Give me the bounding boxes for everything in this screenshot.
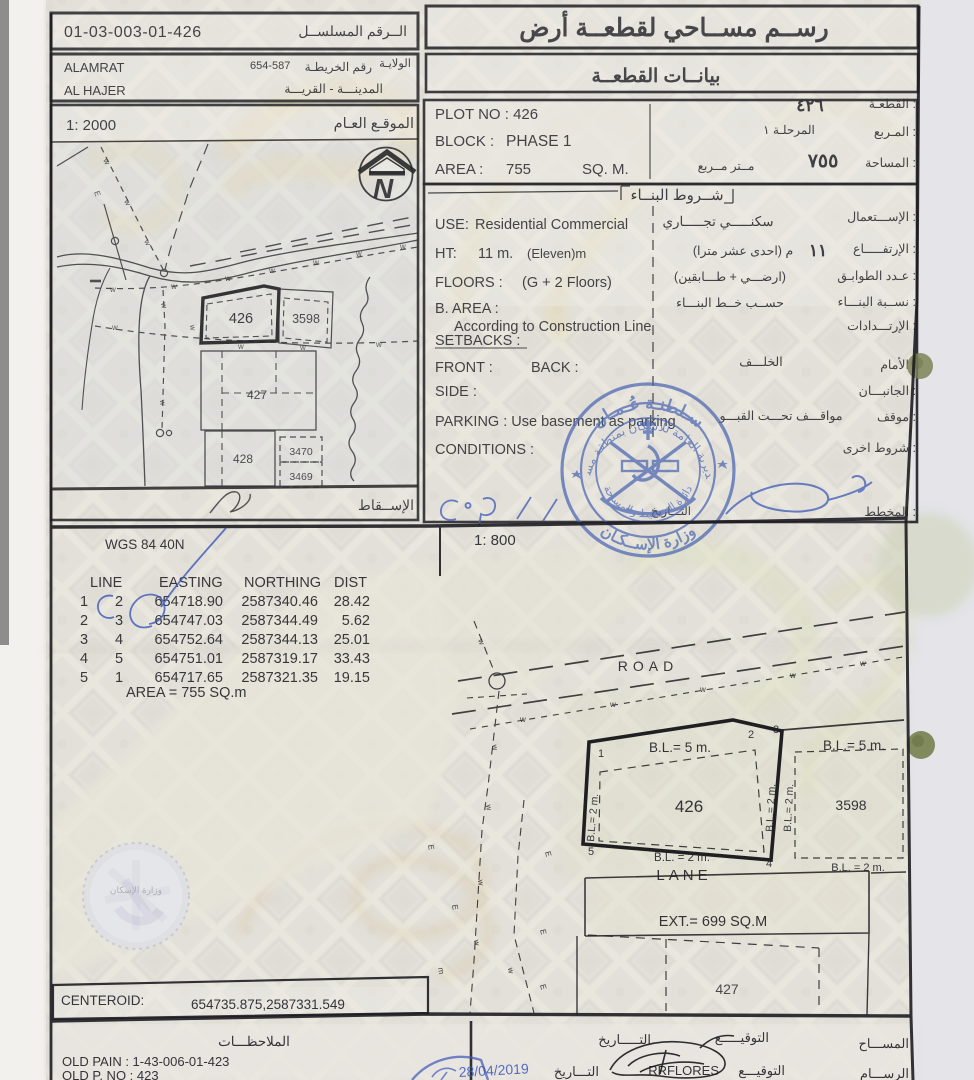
svg-text:CENTEROID:: CENTEROID:	[61, 993, 144, 1008]
svg-text:w: w	[789, 671, 796, 680]
svg-text:WGS 84 40N: WGS 84 40N	[105, 537, 185, 552]
svg-text:654751.01: 654751.01	[154, 651, 223, 667]
svg-text:وزارة الإسكان: وزارة الإسكان	[110, 885, 162, 896]
svg-text:2587321.35: 2587321.35	[241, 670, 318, 686]
svg-text:5: 5	[588, 846, 594, 858]
svg-text:5: 5	[80, 670, 88, 686]
svg-text:3: 3	[115, 613, 123, 629]
svg-text:w: w	[476, 878, 486, 886]
svg-text:2: 2	[80, 613, 88, 629]
svg-text:28.42: 28.42	[334, 594, 370, 610]
svg-text:5.62: 5.62	[342, 613, 370, 629]
svg-text:2: 2	[115, 594, 123, 610]
svg-text:4: 4	[766, 858, 772, 870]
svg-text:LINE: LINE	[90, 575, 123, 591]
svg-text:التـــاريخ: التـــاريخ	[554, 1064, 599, 1080]
svg-text:B.L.= 5 m.: B.L.= 5 m.	[649, 740, 711, 755]
svg-text:B.L. = 2 m.: B.L. = 2 m.	[654, 852, 710, 864]
svg-text:EASTING: EASTING	[159, 575, 223, 591]
svg-text:w: w	[519, 715, 526, 724]
svg-text:19.15: 19.15	[334, 670, 370, 686]
svg-text:EXT.= 699 SQ.M: EXT.= 699 SQ.M	[659, 914, 767, 930]
svg-text:1: 1	[115, 670, 123, 686]
svg-text:المســـاح: المســـاح	[859, 1036, 909, 1052]
svg-text:التوقيـــــع: التوقيـــــع	[715, 1030, 769, 1046]
svg-text:DIST: DIST	[334, 575, 367, 591]
svg-text:OLD PAIN : 1-43-006-01-423: OLD PAIN : 1-43-006-01-423	[62, 1054, 229, 1069]
svg-text:2587344.49: 2587344.49	[241, 613, 318, 629]
svg-text:التوقيـــع: التوقيـــع	[738, 1063, 785, 1079]
svg-text:2: 2	[748, 729, 754, 741]
svg-text:OLD P. NO : 423: OLD P. NO : 423	[62, 1068, 159, 1080]
svg-text:w: w	[609, 700, 616, 709]
svg-text:NORTHING: NORTHING	[244, 575, 321, 591]
svg-text:ROAD: ROAD	[618, 658, 678, 674]
svg-text:1: 800: 1: 800	[474, 532, 516, 549]
svg-text:33.43: 33.43	[334, 651, 370, 667]
svg-text:B.L.= 2 m.: B.L.= 2 m.	[782, 783, 797, 832]
svg-text:2587319.17: 2587319.17	[241, 651, 318, 667]
svg-text:1: 1	[598, 748, 604, 760]
svg-text:2587344.13: 2587344.13	[241, 632, 318, 648]
svg-text:426: 426	[675, 797, 703, 816]
svg-text:2587340.46: 2587340.46	[241, 594, 318, 610]
svg-text:654752.64: 654752.64	[154, 632, 223, 648]
svg-text:654735.875,2587331.549: 654735.875,2587331.549	[191, 997, 345, 1012]
svg-text:w: w	[699, 685, 706, 694]
svg-text:الرســـام: الرســـام	[860, 1066, 909, 1080]
svg-text:B.L.= 5 m.: B.L.= 5 m.	[823, 738, 885, 753]
svg-text:1: 1	[80, 594, 88, 610]
svg-text:الملاحظـــات: الملاحظـــات	[218, 1034, 290, 1049]
svg-text:3: 3	[773, 724, 779, 736]
svg-text:654717.65: 654717.65	[154, 670, 223, 686]
svg-text:25.01: 25.01	[334, 632, 370, 648]
svg-text:AREA = 755 SQ.m: AREA = 755 SQ.m	[126, 685, 247, 701]
svg-text:3: 3	[80, 632, 88, 648]
svg-text:w: w	[506, 966, 516, 974]
svg-text:654747.03: 654747.03	[154, 613, 223, 629]
svg-text:4: 4	[115, 632, 123, 648]
svg-text:w: w	[859, 659, 866, 668]
svg-text:3598: 3598	[835, 797, 866, 813]
svg-text:B.L.= 2 m.: B.L.= 2 m.	[764, 783, 779, 832]
svg-text:5: 5	[115, 651, 123, 667]
svg-text:4: 4	[80, 651, 88, 667]
svg-text:427: 427	[715, 981, 739, 997]
svg-text:w: w	[472, 938, 482, 946]
